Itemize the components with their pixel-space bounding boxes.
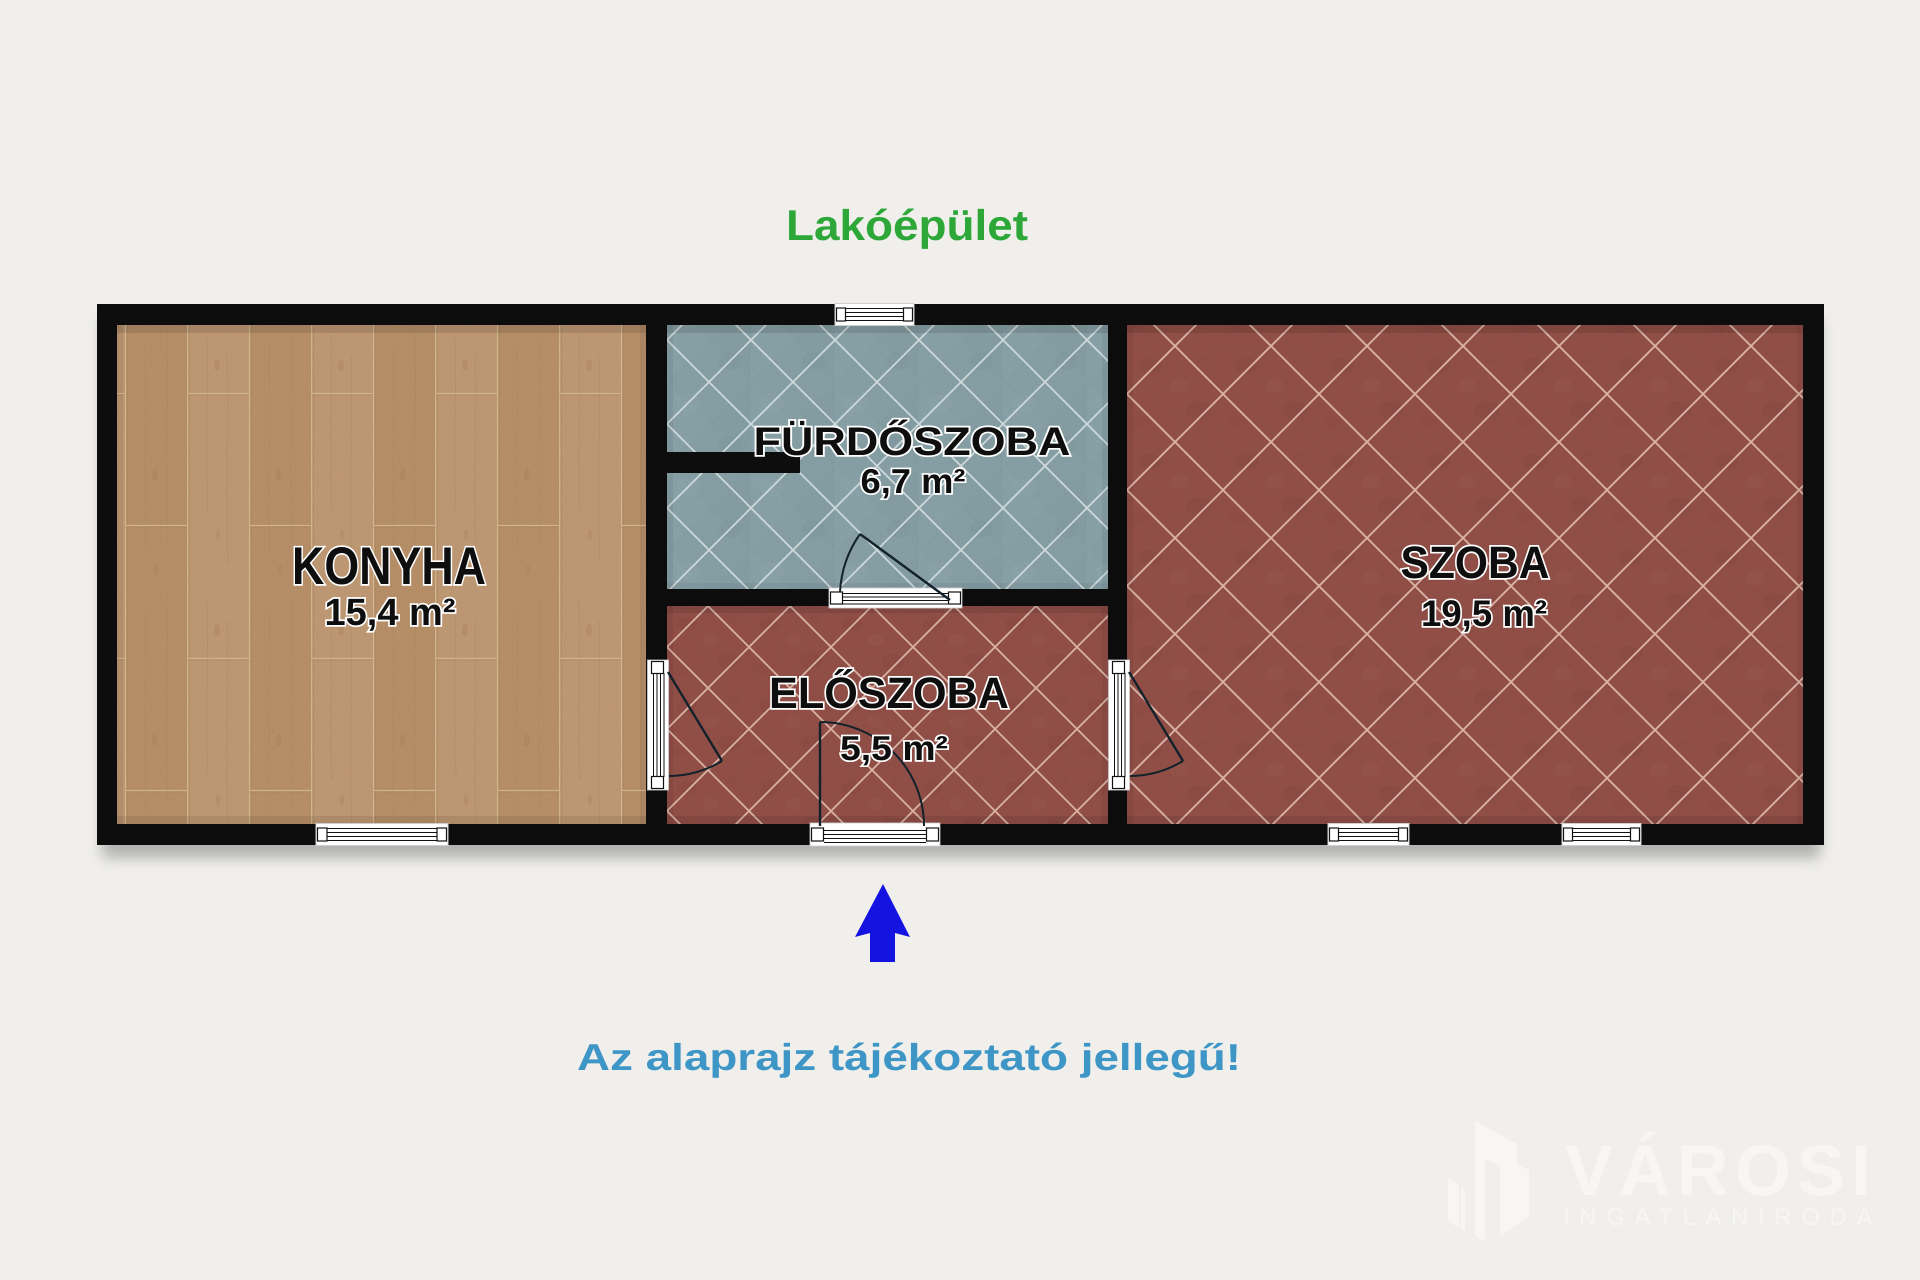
svg-text:15,4 m²: 15,4 m² xyxy=(325,592,456,634)
svg-text:INGATLANIRODA: INGATLANIRODA xyxy=(1563,1204,1882,1231)
svg-text:SZOBA: SZOBA xyxy=(1401,537,1550,588)
svg-text:Az alaprajz tájékoztató jelleg: Az alaprajz tájékoztató jellegű! xyxy=(577,1036,1241,1078)
svg-text:FÜRDŐSZOBA: FÜRDŐSZOBA xyxy=(754,419,1071,464)
svg-text:19,5 m²: 19,5 m² xyxy=(1421,593,1547,634)
svg-text:5,5 m²: 5,5 m² xyxy=(840,730,948,768)
svg-text:Lakóépület: Lakóépület xyxy=(786,202,1028,250)
svg-text:ELŐSZOBA: ELŐSZOBA xyxy=(769,668,1009,718)
svg-text:VÁROSI: VÁROSI xyxy=(1565,1131,1877,1211)
svg-text:KONYHA: KONYHA xyxy=(292,537,486,596)
svg-text:6,7 m²: 6,7 m² xyxy=(861,463,966,501)
